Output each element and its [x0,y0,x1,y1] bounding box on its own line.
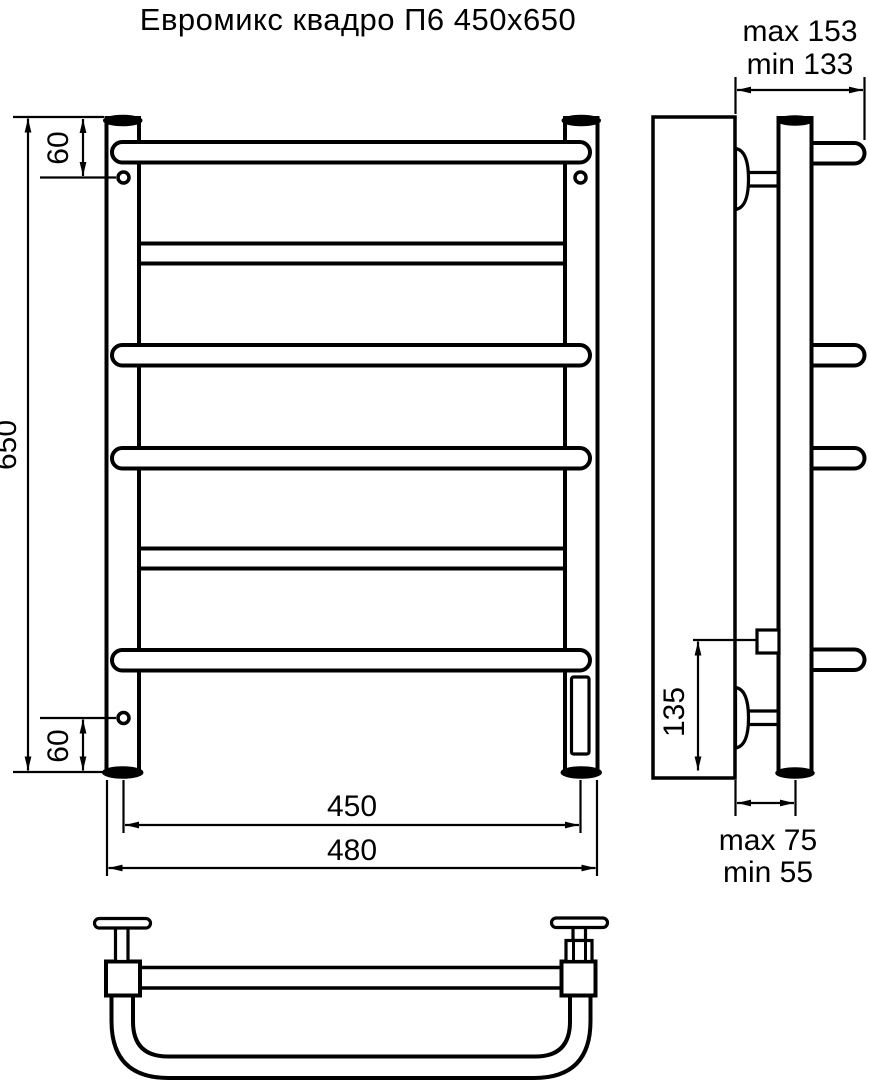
front-left-post-foot [103,767,143,778]
dim-label-overall-width: 480 [327,834,377,867]
front-straight-rail-5 [139,549,565,569]
front-straight-rail-2 [139,244,565,264]
bottom-straight-rail [140,968,562,989]
dim-label-depth-min: min 133 [747,48,854,81]
dim-label-top-offset: 60 [42,131,75,164]
front-left-post-cap [104,116,142,126]
bottom-left-post-block [106,962,140,996]
drawing-title: Евромикс квадро П6 450x650 [140,2,576,37]
bottom-left-bracket-stem [116,928,129,962]
front-bowed-rail-1 [112,142,590,163]
dim-label-power-entry: 135 [658,687,691,737]
side-view [653,116,865,778]
front-right-post-cap [562,116,600,126]
dim-label-wall-gap-max: max 75 [719,824,817,857]
side-post-foot [776,768,814,778]
mount-hole-bottom-left [118,713,129,724]
bottom-left-bracket-cap [95,919,151,929]
dim-label-mount-width: 450 [327,790,377,823]
bottom-u-tube [112,993,591,1078]
front-view [103,116,602,779]
front-right-post-foot [561,767,601,778]
front-bowed-rail-4 [112,448,590,469]
bottom-bracket-plate [736,688,749,749]
side-post [779,118,812,771]
side-post-cap [778,116,813,125]
towel-rail-drawing: Евромикс квадро П6 450x650 6 [0,0,869,1080]
bottom-right-post-block [562,962,596,996]
front-right-post [565,118,598,771]
heating-element-box [572,677,590,754]
dim-label-bottom-offset: 60 [42,729,75,762]
front-bowed-rail-6 [112,650,590,671]
power-entry-box [757,630,779,653]
front-dimensions: 650 60 60 450 480 [0,117,597,876]
dim-label-depth-max: max 153 [742,15,857,48]
front-left-post [107,118,140,771]
bottom-view [95,918,608,1078]
dim-label-height: 650 [0,420,23,470]
bottom-right-bracket-cap [552,918,608,928]
wall-section [653,117,735,778]
bottom-right-bracket-collar [566,941,592,962]
mount-hole-top-left [118,172,129,183]
top-bracket-plate [736,149,749,210]
front-bowed-rail-3 [112,345,590,366]
dim-label-wall-gap-min: min 55 [723,856,813,889]
mount-hole-top-right [575,172,586,183]
technical-drawing-page: Евромикс квадро П6 450x650 6 [0,0,869,1080]
